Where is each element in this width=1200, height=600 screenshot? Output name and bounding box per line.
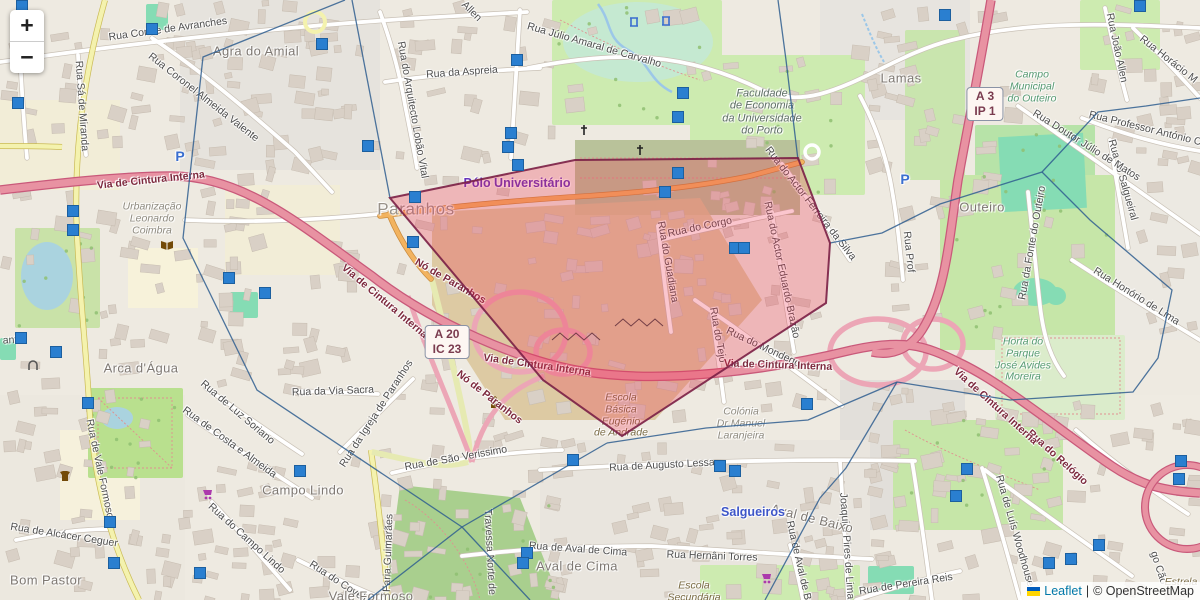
map-marker[interactable] [729, 465, 741, 477]
map-marker[interactable] [672, 111, 684, 123]
map-marker[interactable] [67, 205, 79, 217]
zoom-in-button[interactable]: + [10, 10, 44, 42]
map-marker[interactable] [512, 159, 524, 171]
map-marker[interactable] [961, 463, 973, 475]
map-marker[interactable] [12, 97, 24, 109]
map-marker[interactable] [146, 23, 158, 35]
osm-copyright: © OpenStreetMap [1093, 584, 1194, 598]
map-marker[interactable] [194, 567, 206, 579]
attribution-divider: | [1086, 584, 1089, 598]
map-marker[interactable] [502, 141, 514, 153]
attribution-bar: Leaflet | © OpenStreetMap [1021, 582, 1200, 600]
map-marker[interactable] [659, 186, 671, 198]
map-marker[interactable] [801, 398, 813, 410]
map-marker[interactable] [950, 490, 962, 502]
map-marker[interactable] [316, 38, 328, 50]
ukraine-flag-icon [1027, 587, 1040, 596]
map-marker[interactable] [1093, 539, 1105, 551]
map-marker[interactable] [259, 287, 271, 299]
map-marker[interactable] [517, 557, 529, 569]
map-marker[interactable] [50, 346, 62, 358]
map-marker[interactable] [67, 224, 79, 236]
map-marker[interactable] [108, 557, 120, 569]
map-marker[interactable] [677, 87, 689, 99]
leaflet-map[interactable]: Rua Conde de AvranchesAgra do AmialRua C… [0, 0, 1200, 600]
map-marker[interactable] [15, 332, 27, 344]
map-marker[interactable] [1134, 0, 1146, 12]
map-marker[interactable] [409, 191, 421, 203]
map-marker[interactable] [714, 460, 726, 472]
zoom-control: + − [10, 10, 44, 73]
map-marker[interactable] [738, 242, 750, 254]
map-marker[interactable] [1065, 553, 1077, 565]
map-marker[interactable] [939, 9, 951, 21]
map-marker[interactable] [1173, 473, 1185, 485]
map-marker[interactable] [1043, 557, 1055, 569]
map-marker[interactable] [1175, 455, 1187, 467]
map-marker[interactable] [505, 127, 517, 139]
map-marker[interactable] [104, 516, 116, 528]
zoom-out-button[interactable]: − [10, 42, 44, 73]
map-marker[interactable] [362, 140, 374, 152]
map-marker[interactable] [511, 54, 523, 66]
map-marker[interactable] [294, 465, 306, 477]
leaflet-link[interactable]: Leaflet [1044, 584, 1082, 598]
map-marker[interactable] [567, 454, 579, 466]
map-marker[interactable] [82, 397, 94, 409]
map-marker[interactable] [672, 167, 684, 179]
map-marker[interactable] [223, 272, 235, 284]
map-marker[interactable] [407, 236, 419, 248]
